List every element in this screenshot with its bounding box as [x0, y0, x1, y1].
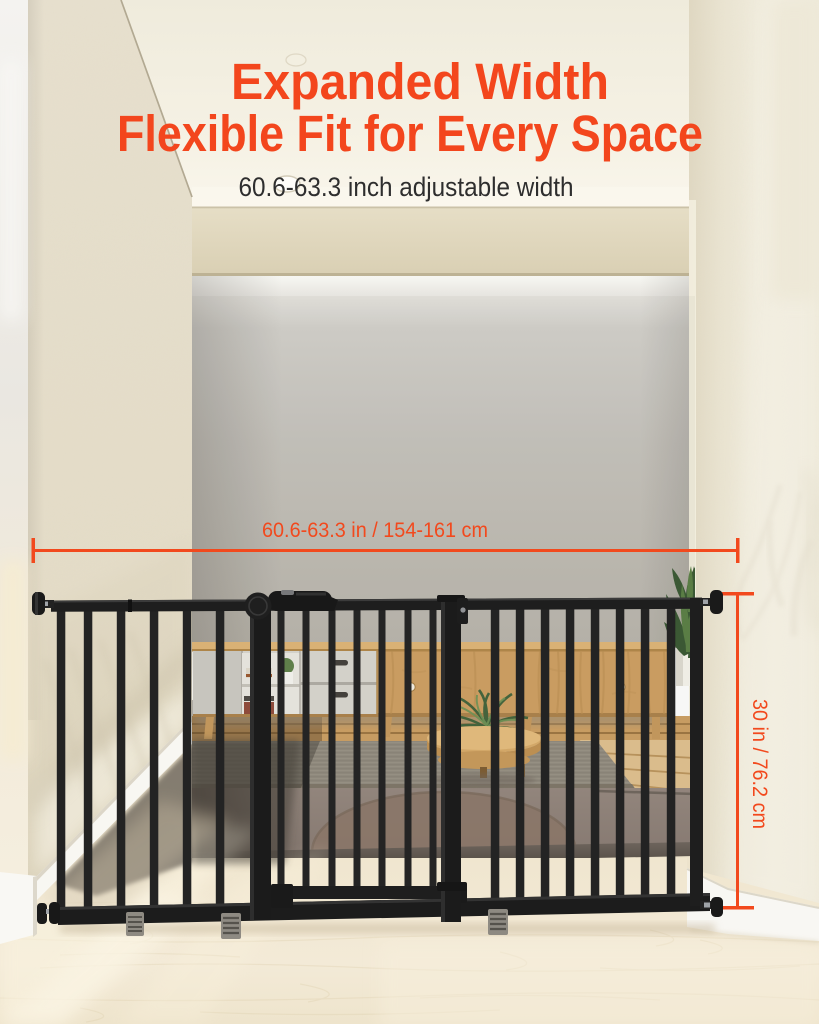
svg-text:Flexible Fit for Every Space: Flexible Fit for Every Space	[117, 105, 703, 162]
svg-text:30 in / 76.2 cm: 30 in / 76.2 cm	[748, 699, 771, 829]
svg-text:60.6-63.3 in / 154-161 cm: 60.6-63.3 in / 154-161 cm	[262, 519, 488, 542]
svg-text:Expanded Width: Expanded Width	[231, 53, 609, 110]
svg-text:60.6-63.3 inch adjustable widt: 60.6-63.3 inch adjustable width	[239, 172, 574, 202]
